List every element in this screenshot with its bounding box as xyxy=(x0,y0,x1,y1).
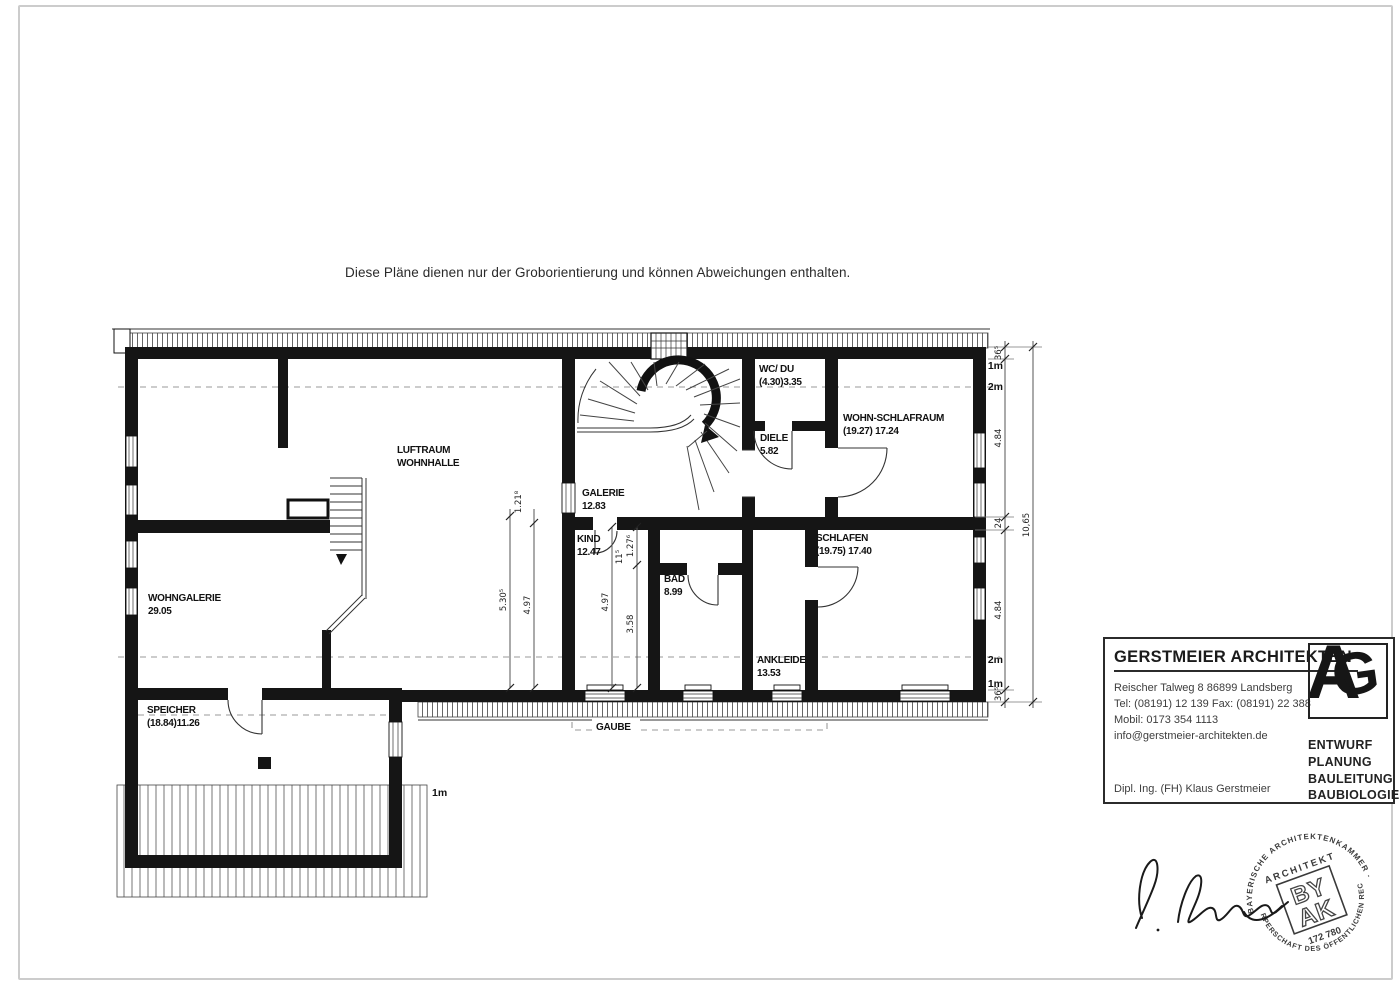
room-label-wohngalerie: WOHNGALERIE xyxy=(148,593,221,604)
room-label-wohn-schlafraum: WOHN-SCHLAFRAUM xyxy=(843,413,944,424)
gaube-annotation: GAUBE xyxy=(572,719,827,733)
room-area-kind: 12.47 xyxy=(577,547,601,558)
room-area-bad: 8.99 xyxy=(664,587,683,598)
dim-kind-b: 11⁵ xyxy=(615,550,625,564)
roof-window xyxy=(651,333,687,359)
room-area-speicher: (18.84)11.26 xyxy=(147,718,200,729)
dim-galerie-a: 1.21⁸ xyxy=(514,490,524,513)
company-email: info@gerstmeier-architekten.de xyxy=(1114,729,1311,745)
dim-upper: 4.84 xyxy=(994,429,1004,448)
room-area-wc-du: (4.30)3.35 xyxy=(759,377,802,388)
dim-kind-a: 1.27⁶ xyxy=(626,534,636,557)
title-block: GERSTMEIER ARCHITEKTEN Reischer Talweg 8… xyxy=(1103,637,1395,804)
room-label-wohnhalle: WOHNHALLE xyxy=(397,458,460,469)
logo-letter-g: G xyxy=(1327,643,1383,711)
company-contact: Reischer Talweg 8 86899 Landsberg Tel: (… xyxy=(1114,681,1311,745)
room-label-luftraum: LUFTRAUM xyxy=(397,445,450,456)
dim-lower: 4.84 xyxy=(994,601,1004,620)
gaube-label: GAUBE xyxy=(596,722,631,733)
room-area-wohngalerie: 29.05 xyxy=(148,606,172,617)
level-1m-speicher: 1m xyxy=(432,787,447,799)
service-item: BAULEITUNG xyxy=(1308,772,1399,787)
dim-wall-top: 36⁵ xyxy=(994,346,1004,360)
dim-total: 10,65 xyxy=(1022,513,1032,537)
room-label-speicher: SPEICHER xyxy=(147,705,197,716)
service-item: PLANUNG xyxy=(1308,755,1399,770)
room-label-bad: BAD xyxy=(664,574,685,585)
service-item: BAUBIOLOGIE xyxy=(1308,788,1399,803)
dim-kind-d: 3.58 xyxy=(626,615,636,634)
room-area-schlafen: (19.75) 17.40 xyxy=(816,546,872,557)
room-labels: LUFTRAUM WOHNHALLE WOHNGALERIE 29.05 GAL… xyxy=(147,364,944,729)
room-area-wohn-schlafraum: (19.27) 17.24 xyxy=(843,426,899,437)
room-area-galerie: 12.83 xyxy=(582,501,606,512)
room-area-ankleide: 13.53 xyxy=(757,668,781,679)
level-1m-bottom: 1m xyxy=(988,678,1003,690)
level-2m-bottom: 2m xyxy=(988,654,1003,666)
room-label-kind: KIND xyxy=(577,534,600,545)
company-phone: Tel: (08191) 12 139 Fax: (08191) 22 388 xyxy=(1114,697,1311,713)
room-area-diele: 5.82 xyxy=(760,446,779,457)
service-item: ENTWURF xyxy=(1308,738,1399,753)
level-1m-top: 1m xyxy=(988,360,1003,372)
dim-kind-c: 4.97 xyxy=(601,593,611,612)
room-label-galerie: GALERIE xyxy=(582,488,625,499)
company-address: Reischer Talweg 8 86899 Landsberg xyxy=(1114,681,1311,697)
dim-galerie-c: 4.97 xyxy=(523,596,533,615)
floor-plan-drawing: LUFTRAUM WOHNHALLE WOHNGALERIE 29.05 GAL… xyxy=(0,0,1399,988)
level-2m-top: 2m xyxy=(988,381,1003,393)
room-label-diele: DIELE xyxy=(760,433,789,444)
company-mobile: Mobil: 0173 354 1113 xyxy=(1114,713,1311,729)
straight-stair xyxy=(330,478,366,599)
architect-name: Dipl. Ing. (FH) Klaus Gerstmeier xyxy=(1114,783,1270,795)
room-label-schlafen: SCHLAFEN xyxy=(816,533,868,544)
room-label-wc-du: WC/ DU xyxy=(759,364,794,375)
dim-mid-wall: 24 xyxy=(994,518,1004,529)
dim-galerie-b: 5.30⁵ xyxy=(499,589,509,611)
room-label-ankleide: ANKLEIDE xyxy=(757,655,806,666)
services-list: ENTWURF PLANUNG BAULEITUNG BAUBIOLOGIE xyxy=(1308,738,1399,805)
ag-logo: A G xyxy=(1308,643,1388,719)
scanned-plan-page: Diese Pläne dienen nur der Groborientier… xyxy=(0,0,1399,988)
